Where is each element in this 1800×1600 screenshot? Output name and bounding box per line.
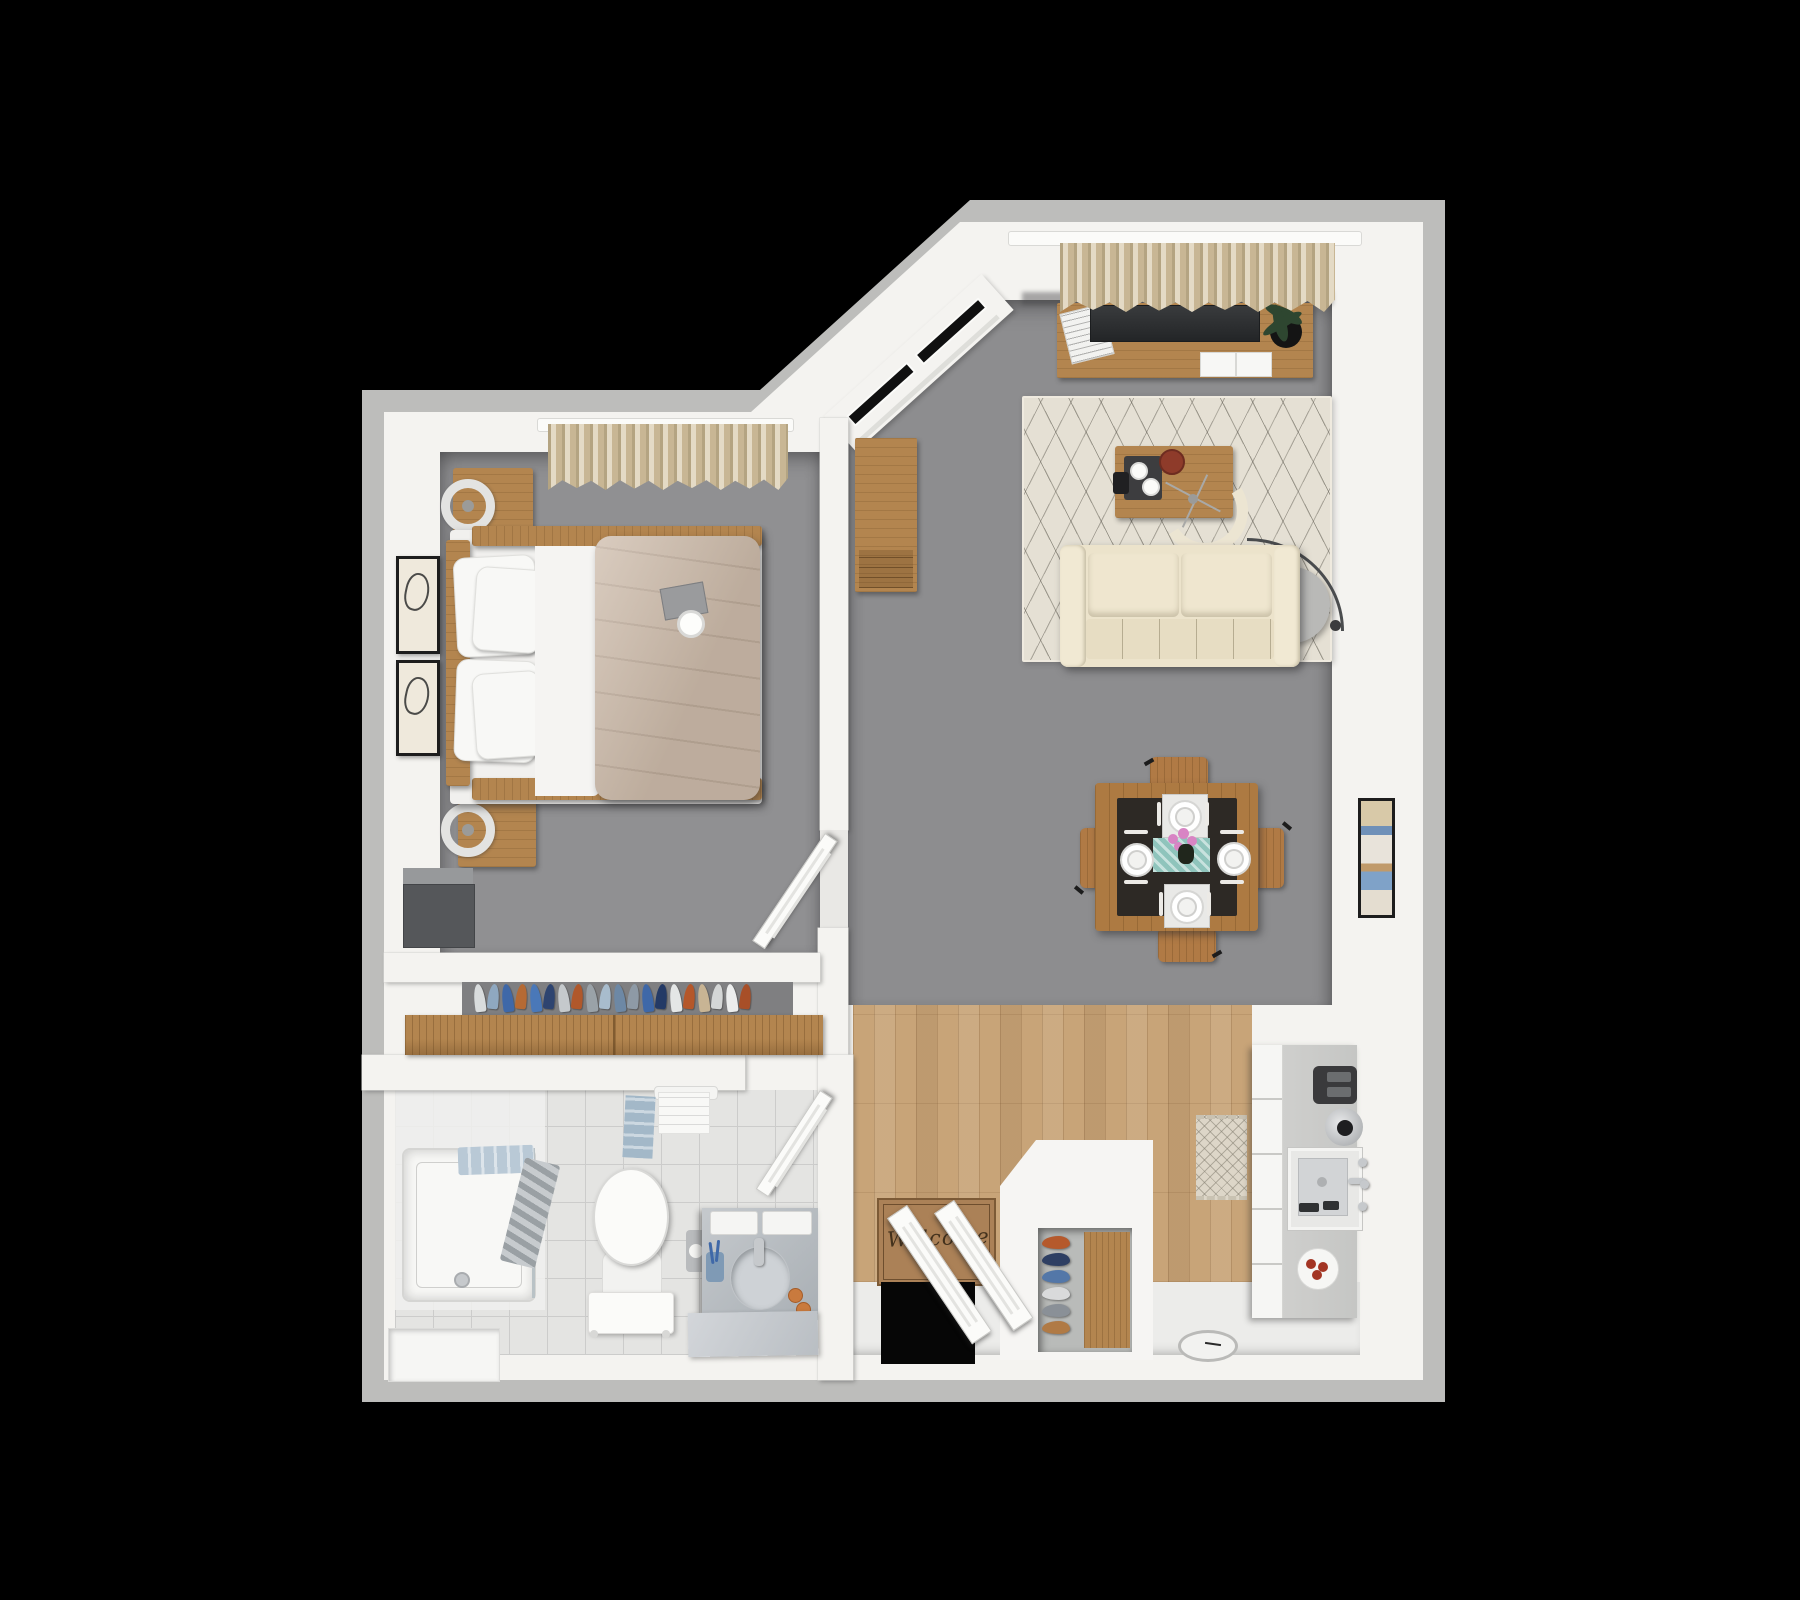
bedroom-living-wall bbox=[820, 418, 848, 830]
shower-tray bbox=[416, 1162, 522, 1288]
stool-leg bbox=[662, 1330, 670, 1338]
wall-art-frame-1 bbox=[396, 556, 440, 654]
dining-chair-south bbox=[1158, 928, 1216, 962]
sofa-cushion bbox=[1181, 553, 1272, 617]
sink-drain bbox=[1317, 1177, 1327, 1187]
mug-on-bed bbox=[677, 610, 705, 638]
hanging-garment bbox=[739, 983, 753, 1009]
cup bbox=[1130, 462, 1148, 480]
sponge bbox=[1299, 1203, 1319, 1212]
floor-plan-scene: Welcome bbox=[0, 0, 1800, 1600]
television bbox=[1090, 305, 1260, 342]
dinner-plate bbox=[1217, 842, 1251, 876]
kitchen-sink bbox=[1288, 1148, 1362, 1230]
shoe bbox=[1042, 1321, 1070, 1334]
toaster-slot bbox=[1327, 1087, 1351, 1097]
dresser bbox=[855, 438, 917, 592]
abstract-art bbox=[1361, 801, 1392, 915]
clock-hand bbox=[1205, 1342, 1221, 1346]
fork bbox=[1159, 892, 1163, 916]
hanging-garment bbox=[640, 983, 654, 1012]
shoe bbox=[1042, 1253, 1070, 1266]
sponge bbox=[1323, 1201, 1339, 1210]
bedroom-tv-edge bbox=[403, 868, 473, 884]
sofa-armrest bbox=[1274, 545, 1300, 667]
vanity-tray bbox=[710, 1211, 758, 1235]
hanging-garment bbox=[500, 983, 514, 1012]
pillow bbox=[471, 670, 545, 761]
hanging-garment bbox=[655, 983, 669, 1009]
sofa bbox=[1060, 545, 1300, 667]
bathroom-vanity bbox=[702, 1208, 818, 1314]
sofa-armrest bbox=[1060, 545, 1086, 667]
hanging-garment bbox=[683, 983, 697, 1009]
shoe bbox=[1042, 1270, 1070, 1283]
clock-on-floor bbox=[1178, 1330, 1238, 1362]
arc-lamp-hub bbox=[1188, 494, 1198, 504]
duvet bbox=[595, 536, 760, 800]
hanging-garment bbox=[584, 983, 598, 1012]
shower-drain bbox=[454, 1272, 470, 1288]
vanity-faucet bbox=[754, 1238, 764, 1266]
bedroom-curtains bbox=[548, 424, 788, 490]
console-drawer bbox=[1236, 352, 1272, 377]
cup bbox=[1142, 478, 1160, 496]
kitchen-runner-rug bbox=[1196, 1115, 1247, 1200]
spoon bbox=[1220, 880, 1244, 884]
wall-art-frame-2 bbox=[396, 660, 440, 756]
hanging-garment bbox=[472, 983, 486, 1012]
hanging-garment bbox=[487, 983, 501, 1009]
shoe bbox=[1042, 1304, 1070, 1317]
sofa-cushion bbox=[1088, 553, 1179, 617]
white-towel bbox=[658, 1092, 710, 1134]
faucet-handle bbox=[1358, 1202, 1367, 1211]
hanging-garment bbox=[696, 983, 710, 1012]
hanging-garment bbox=[571, 983, 585, 1009]
arc-lamp-base bbox=[1330, 620, 1341, 631]
hanging-garment bbox=[543, 983, 557, 1009]
abstract-art-line bbox=[401, 675, 432, 717]
hanging-garment bbox=[724, 983, 738, 1012]
soap-bottle bbox=[788, 1288, 803, 1303]
dinner-plate bbox=[1120, 843, 1154, 877]
sofa-backrest bbox=[1086, 619, 1274, 659]
console-drawer bbox=[1200, 352, 1236, 377]
wall-niche bbox=[388, 1328, 500, 1382]
faucet-handle bbox=[1360, 1180, 1369, 1189]
pillow bbox=[471, 566, 545, 655]
closet-hanging-clothes bbox=[474, 984, 792, 1016]
hanging-garment bbox=[556, 983, 570, 1012]
toaster-slot bbox=[1327, 1072, 1351, 1082]
toothbrush bbox=[715, 1240, 720, 1262]
spoon bbox=[1124, 880, 1148, 884]
closet-wardrobe bbox=[405, 1015, 823, 1055]
hanging-garment bbox=[515, 983, 529, 1009]
hanging-garment bbox=[612, 983, 626, 1012]
kettle-lid bbox=[1337, 1120, 1353, 1136]
bedroom-wall-tv bbox=[403, 884, 475, 948]
island-wood-panel bbox=[1084, 1232, 1130, 1348]
toothbrush bbox=[708, 1242, 714, 1264]
dinner-plate bbox=[1170, 890, 1204, 924]
fork bbox=[1157, 802, 1161, 826]
kettle bbox=[1325, 1108, 1363, 1146]
living-curtains bbox=[1060, 243, 1335, 312]
vase bbox=[1178, 844, 1194, 864]
dresser-drawers bbox=[859, 550, 913, 588]
blue-towel bbox=[622, 1095, 655, 1158]
shoe bbox=[1042, 1236, 1070, 1249]
closet-bathroom-wall bbox=[362, 1055, 745, 1090]
vanity-tray bbox=[762, 1211, 812, 1235]
faucet-handle bbox=[1358, 1158, 1367, 1167]
toothbrush-cup bbox=[706, 1252, 724, 1282]
fruit-plate bbox=[1297, 1248, 1339, 1290]
decor-bowl bbox=[1159, 449, 1185, 475]
hanging-garment bbox=[711, 983, 725, 1009]
toilet bbox=[593, 1168, 669, 1266]
spoon bbox=[1205, 802, 1209, 826]
hanging-garment bbox=[668, 983, 682, 1012]
hanging-garment bbox=[528, 983, 542, 1012]
spoon bbox=[1207, 892, 1211, 916]
hanging-garment bbox=[599, 983, 613, 1009]
toaster bbox=[1313, 1066, 1357, 1104]
lamp-bulb-top bbox=[462, 500, 474, 512]
lamp-bulb-bottom bbox=[462, 824, 474, 836]
toilet-paper-roll bbox=[689, 1244, 703, 1258]
hanging-garment bbox=[627, 983, 641, 1009]
fork bbox=[1124, 830, 1148, 834]
shoe bbox=[1042, 1287, 1070, 1300]
stool-leg bbox=[590, 1330, 598, 1338]
shoe-rack bbox=[1042, 1234, 1082, 1348]
vanity-floor-tray bbox=[688, 1311, 819, 1357]
fork bbox=[1220, 830, 1244, 834]
wardrobe-seam bbox=[613, 1015, 615, 1055]
bed-sheet bbox=[535, 546, 599, 796]
toilet-step-stool bbox=[588, 1292, 674, 1334]
apartment-plan: Welcome bbox=[362, 200, 1445, 1402]
wall-art-right bbox=[1358, 798, 1395, 918]
coffee-pot bbox=[1113, 472, 1129, 494]
abstract-art-line bbox=[401, 571, 432, 613]
bedroom-closet-wall bbox=[384, 953, 820, 982]
kitchen-drawer-fronts bbox=[1252, 1045, 1283, 1318]
